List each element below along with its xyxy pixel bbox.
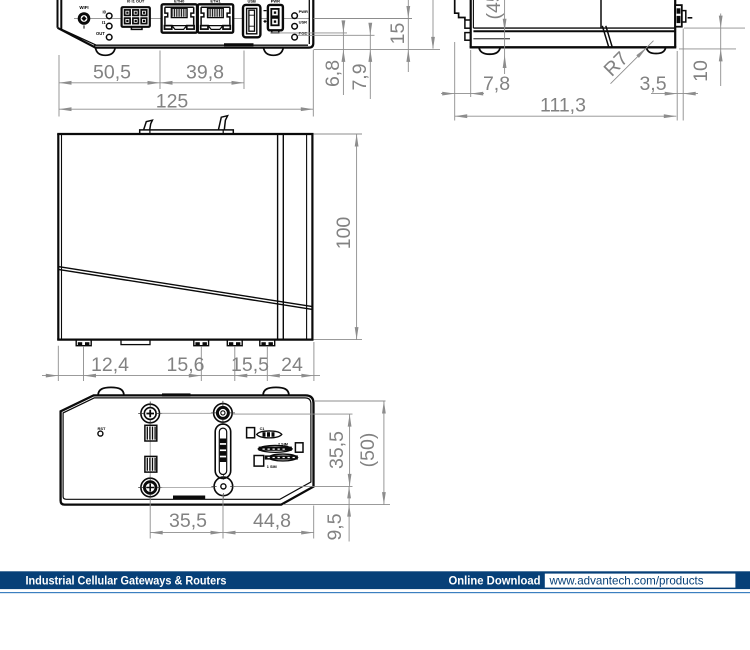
svg-text:39,8: 39,8 (186, 61, 224, 83)
svg-text:USB: USB (247, 0, 256, 4)
svg-text:WIFI: WIFI (79, 5, 88, 10)
svg-text:C1: C1 (260, 427, 265, 431)
svg-text:PWR: PWR (299, 9, 308, 14)
svg-text:Industrial Cellular Gateways &: Industrial Cellular Gateways & Routers (26, 574, 227, 588)
svg-text:3,5: 3,5 (639, 73, 666, 95)
svg-text:PWR: PWR (271, 0, 280, 4)
svg-text:9,5: 9,5 (324, 513, 346, 540)
svg-text:10: 10 (690, 60, 712, 82)
svg-text:OUT: OUT (96, 31, 105, 36)
svg-text:2 SIM: 2 SIM (278, 443, 288, 447)
svg-text:24: 24 (281, 354, 303, 376)
svg-text:(50): (50) (357, 433, 379, 468)
svg-text:RST: RST (98, 426, 107, 431)
svg-text:35,5: 35,5 (169, 510, 207, 532)
svg-text:7,8: 7,8 (483, 73, 510, 95)
svg-text:15,6: 15,6 (167, 354, 205, 376)
svg-text:R7: R7 (600, 48, 633, 81)
svg-text:111,3: 111,3 (540, 95, 586, 117)
svg-text:50,5: 50,5 (93, 61, 131, 83)
svg-text:ETH1: ETH1 (210, 0, 221, 4)
svg-text:Online Download: Online Download (449, 574, 541, 588)
svg-text:7,9: 7,9 (349, 63, 371, 90)
svg-text:35,5: 35,5 (326, 431, 348, 469)
svg-text:I0: I0 (103, 9, 107, 14)
svg-text:15: 15 (387, 23, 409, 45)
svg-text:6,8: 6,8 (322, 60, 344, 87)
svg-text:I0 I1 OUT: I0 I1 OUT (127, 0, 145, 4)
svg-text:100: 100 (333, 217, 355, 250)
svg-text:I1: I1 (102, 20, 106, 25)
svg-text:15,5: 15,5 (231, 354, 269, 376)
svg-text:12,4: 12,4 (91, 354, 129, 376)
svg-text:125: 125 (156, 90, 189, 112)
svg-text:USR: USR (299, 20, 308, 25)
svg-text:44,8: 44,8 (253, 510, 291, 532)
svg-text:ETH0: ETH0 (174, 0, 185, 4)
svg-text:1 SIM: 1 SIM (267, 465, 277, 469)
svg-text:www.advantech.com/products: www.advantech.com/products (549, 574, 704, 587)
svg-text:(45: (45 (483, 0, 505, 20)
